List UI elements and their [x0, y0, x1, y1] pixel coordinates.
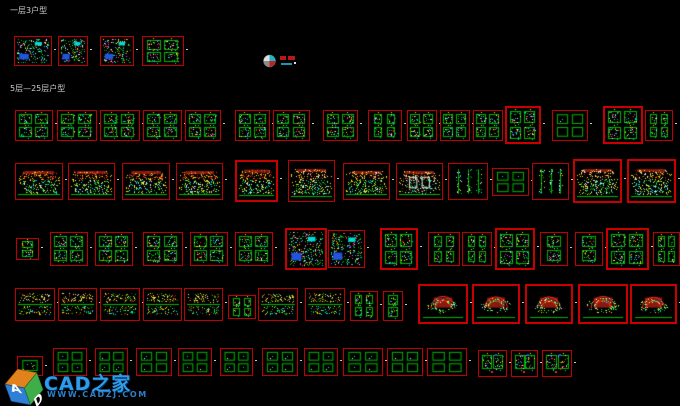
sheet-drawing: [428, 349, 466, 375]
dimension-tick: [41, 247, 43, 248]
sheet-drawing: [15, 37, 51, 65]
sheet-drawing: [575, 161, 620, 201]
sheet-frame[interactable]: [304, 348, 338, 376]
sheet-drawing: [541, 233, 567, 265]
sheet-frame[interactable]: [143, 110, 182, 141]
sheet-drawing: [263, 349, 297, 375]
dimension-tick: [367, 247, 369, 248]
sheet-frame[interactable]: [552, 110, 588, 141]
sheet-frame[interactable]: [14, 36, 52, 66]
sheet-frame[interactable]: [122, 163, 170, 200]
sheet-drawing: [289, 161, 334, 201]
sheet-drawing: [605, 108, 641, 142]
sheet-drawing: [493, 169, 528, 195]
sheet-frame[interactable]: [220, 348, 253, 376]
sheet-frame[interactable]: [15, 110, 53, 141]
sheet-drawing: [186, 111, 220, 140]
sheet-drawing: [16, 111, 52, 140]
sheet-frame[interactable]: [462, 232, 492, 266]
dimension-tick: [185, 247, 187, 248]
sheet-drawing: [236, 233, 272, 265]
sheet-frame[interactable]: [100, 288, 140, 321]
sheet-frame[interactable]: [448, 163, 488, 200]
sheet-drawing: [608, 230, 647, 268]
sheet-frame[interactable]: [630, 284, 677, 324]
sheet-frame[interactable]: [627, 159, 676, 203]
sheet-frame[interactable]: [16, 238, 39, 260]
sheet-frame[interactable]: [505, 106, 541, 144]
sheet-frame[interactable]: [68, 163, 115, 200]
sheet-frame[interactable]: [235, 232, 273, 266]
sheet-frame[interactable]: [235, 110, 270, 141]
section-label-first-floor: 一层3户型: [10, 6, 47, 15]
sheet-drawing: [101, 289, 139, 320]
sheet-frame[interactable]: [258, 288, 298, 321]
sheet-frame[interactable]: [262, 348, 298, 376]
dimension-tick: [469, 360, 471, 361]
dimension-tick: [300, 360, 302, 361]
sheet-drawing: [384, 292, 402, 320]
sheet-frame[interactable]: [285, 228, 327, 270]
sheet-drawing: [388, 349, 422, 375]
sheet-drawing: [144, 111, 181, 140]
sheet-drawing: [629, 161, 674, 201]
cad-model-space: 一层3户型 5层—25层户型 A D CAD之家 WWW.CADZJ.COM: [0, 0, 680, 406]
sheet-drawing: [324, 111, 357, 140]
sheet-drawing: [344, 349, 382, 375]
sheet-frame[interactable]: [15, 163, 63, 200]
sheet-drawing: [287, 230, 325, 268]
sheet-frame[interactable]: [532, 163, 569, 200]
sheet-frame[interactable]: [427, 348, 467, 376]
sheet-drawing: [185, 289, 222, 320]
sheet-frame[interactable]: [328, 230, 365, 268]
sheet-frame[interactable]: [305, 288, 345, 321]
sheet-frame[interactable]: [511, 350, 538, 377]
sheet-frame[interactable]: [288, 160, 335, 202]
dimension-tick: [312, 123, 314, 124]
sheet-frame[interactable]: [380, 228, 418, 270]
sheet-frame[interactable]: [540, 232, 568, 266]
sheet-drawing: [59, 289, 96, 320]
sheet-frame[interactable]: [58, 36, 88, 66]
dimension-tick: [405, 304, 407, 305]
sheet-drawing: [329, 231, 364, 267]
sheet-drawing: [344, 164, 389, 199]
dimension-tick: [90, 49, 92, 50]
sheet-frame[interactable]: [407, 110, 437, 141]
dimension-tick: [135, 247, 137, 248]
sheet-frame[interactable]: [542, 350, 572, 377]
red-annotation-mark: [280, 56, 295, 60]
sheet-frame[interactable]: [57, 110, 97, 141]
sheet-frame[interactable]: [387, 348, 423, 376]
north-arrow-icon: [263, 54, 276, 68]
dimension-tick: [280, 178, 282, 179]
sheet-drawing: [474, 286, 518, 322]
sheet-drawing: [533, 164, 568, 199]
sheet-frame[interactable]: [495, 228, 535, 270]
sheet-drawing: [580, 286, 626, 322]
sheet-drawing: [274, 111, 309, 140]
sheet-drawing: [191, 233, 227, 265]
sheet-drawing: [143, 37, 183, 65]
sheet-drawing: [512, 351, 537, 376]
dimension-tick: [537, 246, 539, 247]
north-arrow-symbol: [263, 54, 305, 70]
dimension-tick: [380, 304, 382, 305]
sheet-frame[interactable]: [578, 284, 628, 324]
sheet-drawing: [144, 233, 182, 265]
sheet-drawing: [632, 286, 675, 322]
sheet-drawing: [382, 230, 416, 268]
dimension-tick: [675, 123, 677, 124]
sheet-frame[interactable]: [603, 106, 643, 144]
sheet-drawing: [474, 111, 502, 140]
sheet-drawing: [58, 111, 96, 140]
section-label-upper-floors: 5层—25层户型: [10, 84, 65, 93]
dimension-tick: [347, 302, 349, 303]
sheet-drawing: [543, 351, 571, 376]
sheet-drawing: [463, 233, 491, 265]
sheet-frame[interactable]: [575, 232, 603, 266]
sheet-drawing: [408, 111, 436, 140]
sheet-frame[interactable]: [492, 168, 529, 196]
dimension-tick: [225, 179, 227, 180]
sheet-frame[interactable]: [100, 110, 140, 141]
sheet-drawing: [441, 111, 469, 140]
sheet-frame[interactable]: [190, 232, 228, 266]
sheet-frame[interactable]: [478, 350, 507, 377]
sheet-frame[interactable]: [606, 228, 649, 270]
dimension-tick: [54, 49, 56, 50]
sheet-frame[interactable]: [100, 36, 134, 66]
sheet-frame[interactable]: [383, 291, 403, 321]
dimension-tick: [340, 360, 342, 361]
dimension-tick: [570, 247, 572, 248]
sheet-drawing: [51, 233, 87, 265]
dimension-tick: [275, 247, 277, 248]
sheet-drawing: [507, 108, 539, 142]
sheet-frame[interactable]: [323, 110, 358, 141]
cadzj-logo-icon: A D: [4, 367, 44, 406]
sheet-frame[interactable]: [428, 232, 460, 266]
sheet-drawing: [101, 37, 133, 65]
dimension-tick: [230, 247, 232, 248]
sheet-frame[interactable]: [15, 288, 55, 321]
sheet-drawing: [351, 292, 377, 320]
sheet-frame[interactable]: [350, 291, 378, 321]
sheet-frame[interactable]: [440, 110, 470, 141]
sheet-drawing: [237, 162, 276, 200]
watermark: A D CAD之家 WWW.CADZJ.COM: [0, 366, 210, 406]
sheet-frame[interactable]: [396, 163, 443, 200]
sheet-drawing: [646, 111, 672, 140]
sheet-frame[interactable]: [58, 288, 97, 321]
dimension-tick: [360, 123, 362, 124]
dimension-tick: [255, 360, 257, 361]
sheet-frame[interactable]: [50, 232, 88, 266]
watermark-url-text: WWW.CADZJ.COM: [47, 390, 148, 399]
sheet-drawing: [236, 111, 269, 140]
dimension-tick: [223, 123, 225, 124]
sheet-drawing: [479, 351, 506, 376]
sheet-drawing: [449, 164, 487, 199]
sheet-drawing: [96, 233, 132, 265]
sheet-drawing: [221, 349, 252, 375]
sheet-frame[interactable]: [273, 110, 310, 141]
sheet-frame[interactable]: [228, 295, 256, 319]
sheet-drawing: [527, 286, 571, 322]
sheet-drawing: [69, 164, 114, 199]
sheet-frame[interactable]: [368, 110, 402, 141]
dimension-tick: [225, 302, 227, 303]
sheet-drawing: [59, 37, 87, 65]
dimension-tick: [575, 302, 577, 303]
sheet-drawing: [17, 239, 38, 259]
dimension-tick: [65, 179, 67, 180]
dimension-tick: [337, 178, 339, 179]
dimension-tick: [136, 49, 138, 50]
sheet-drawing: [177, 164, 222, 199]
dimension-tick: [590, 123, 592, 124]
sheet-frame[interactable]: [653, 232, 680, 266]
sheet-frame[interactable]: [176, 163, 223, 200]
dimension-tick: [130, 360, 132, 361]
dimension-tick: [90, 247, 92, 248]
dimension-tick: [174, 360, 176, 361]
sheet-drawing: [123, 164, 169, 199]
sheet-drawing: [16, 289, 54, 320]
dimension-tick: [300, 302, 302, 303]
dimension-tick: [117, 179, 119, 180]
sheet-frame[interactable]: [525, 284, 573, 324]
dimension-tick: [214, 360, 216, 361]
sheet-drawing: [497, 230, 533, 268]
dimension-tick: [186, 49, 188, 50]
dimension-tick: [420, 246, 422, 247]
sheet-drawing: [229, 296, 255, 318]
sheet-drawing: [553, 111, 587, 140]
sheet-frame[interactable]: [473, 110, 503, 141]
sheet-drawing: [306, 289, 344, 320]
dimension-tick: [392, 179, 394, 180]
sheet-drawing: [576, 233, 602, 265]
sheet-frame[interactable]: [343, 163, 390, 200]
sheet-frame[interactable]: [142, 36, 184, 66]
sheet-drawing: [16, 164, 62, 199]
dimension-tick: [624, 178, 626, 179]
dimension-tick: [543, 123, 545, 124]
sheet-frame[interactable]: [573, 159, 622, 203]
sheet-frame[interactable]: [645, 110, 673, 141]
sheet-drawing: [144, 289, 181, 320]
sheet-drawing: [397, 164, 442, 199]
sheet-frame[interactable]: [418, 284, 468, 324]
cyan-annotation-mark: [281, 63, 292, 65]
sheet-drawing: [259, 289, 297, 320]
dimension-tick: [404, 123, 406, 124]
dimension-tick: [172, 179, 174, 180]
sheet-drawing: [101, 111, 139, 140]
dimension-tick: [522, 302, 524, 303]
sheet-frame[interactable]: [184, 288, 223, 321]
sheet-frame[interactable]: [343, 348, 383, 376]
dimension-tick: [574, 362, 576, 363]
white-dot-mark: [294, 62, 296, 64]
sheet-drawing: [369, 111, 401, 140]
sheet-drawing: [654, 233, 679, 265]
dimension-tick: [89, 360, 91, 361]
dimension-tick: [445, 179, 447, 180]
sheet-frame[interactable]: [95, 232, 133, 266]
sheet-drawing: [420, 286, 466, 322]
sheet-frame[interactable]: [143, 232, 183, 266]
sheet-frame[interactable]: [235, 160, 278, 202]
sheet-frame[interactable]: [185, 110, 221, 141]
sheet-drawing: [305, 349, 337, 375]
sheet-frame[interactable]: [143, 288, 182, 321]
sheet-frame[interactable]: [472, 284, 520, 324]
sheet-drawing: [429, 233, 459, 265]
